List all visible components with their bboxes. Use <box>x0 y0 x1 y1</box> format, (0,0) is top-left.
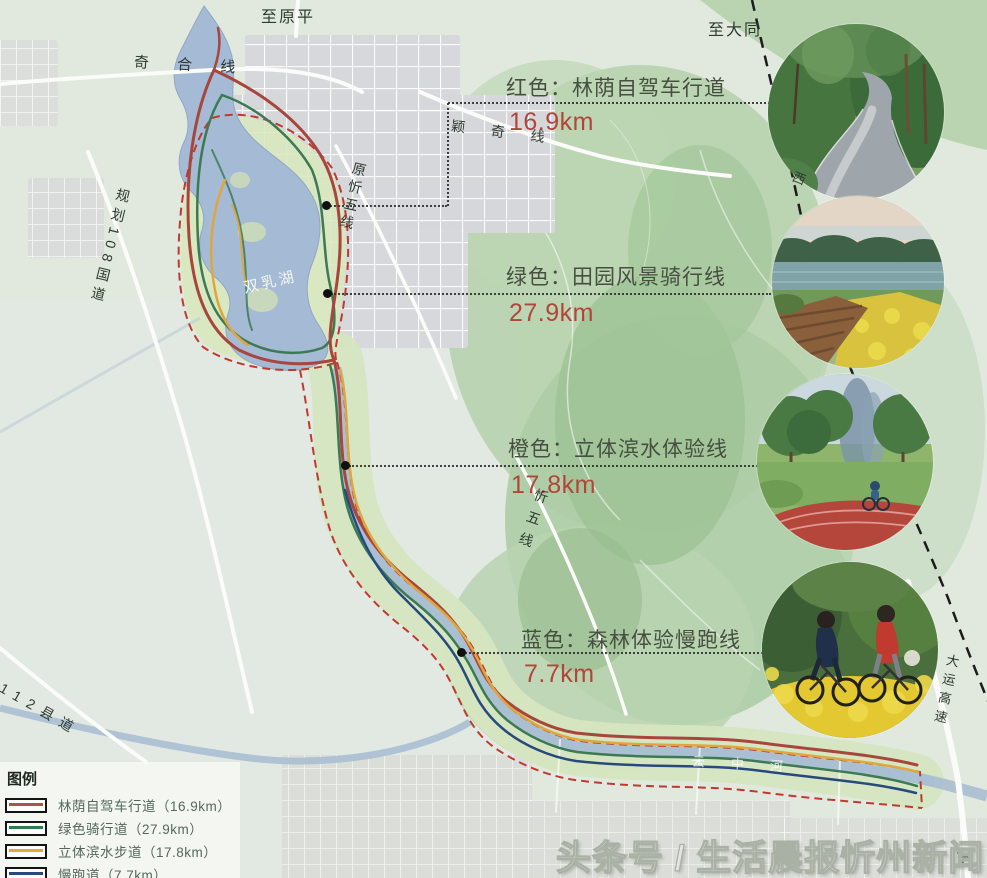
anchor-dot-orange-route <box>341 461 350 470</box>
legend-title: 图例 <box>7 768 240 789</box>
legend-label-driving: 林荫自驾车行道（16.9km） <box>58 795 231 815</box>
watermark-text: 头条号 / 生活晨报忻州新闻 <box>556 830 984 878</box>
legend-swatch-red <box>5 798 47 813</box>
leader-red-c <box>448 102 770 104</box>
legend-label-cycling: 绿色骑行道（27.9km） <box>58 818 203 838</box>
anchor-dot-red-route <box>322 201 331 210</box>
anchor-dot-blue-route <box>457 648 466 657</box>
label-to-datong: 至大同 <box>708 16 762 40</box>
legend-label-waterfront: 立体滨水步道（17.8km） <box>58 841 217 861</box>
legend-row-cycling: 绿色骑行道（27.9km） <box>5 817 240 839</box>
callout-green-title: 绿色：田园风景骑行线 <box>506 261 726 291</box>
callout-orange-distance: 17.8km <box>511 471 596 500</box>
legend-box: 图例 林荫自驾车行道（16.9km） 绿色骑行道（27.9km） 立体滨水步道（… <box>0 762 240 878</box>
photo-wetland-boardwalk <box>772 196 944 368</box>
callout-green-distance: 27.9km <box>509 299 594 328</box>
callout-blue-title: 蓝色：森林体验慢跑线 <box>521 624 741 654</box>
leader-orange <box>349 465 761 467</box>
photo-couple-cycling-flowers <box>762 562 938 738</box>
legend-label-jogging: 慢跑道（7.7km） <box>58 864 167 878</box>
legend-swatch-green <box>5 821 47 836</box>
leader-red-b <box>447 103 449 206</box>
callout-red-title: 红色：林荫自驾车行道 <box>506 72 726 102</box>
photo-park-track-cycling <box>757 374 933 550</box>
anchor-dot-green-route <box>323 289 332 298</box>
leader-green <box>331 293 771 295</box>
map-screenshot: 红色：林荫自驾车行道 16.9km 绿色：田园风景骑行线 27.9km 橙色：立… <box>0 0 987 878</box>
label-to-yuanping: 至原平 <box>261 3 315 27</box>
legend-row-waterfront: 立体滨水步道（17.8km） <box>5 840 240 862</box>
legend-swatch-blue <box>5 867 47 878</box>
legend-row-driving: 林荫自驾车行道（16.9km） <box>5 794 240 816</box>
legend-swatch-orange <box>5 844 47 859</box>
callout-blue-distance: 7.7km <box>524 660 595 689</box>
legend-row-jogging: 慢跑道（7.7km） <box>5 863 240 878</box>
callout-orange-title: 橙色：立体滨水体验线 <box>508 433 728 463</box>
